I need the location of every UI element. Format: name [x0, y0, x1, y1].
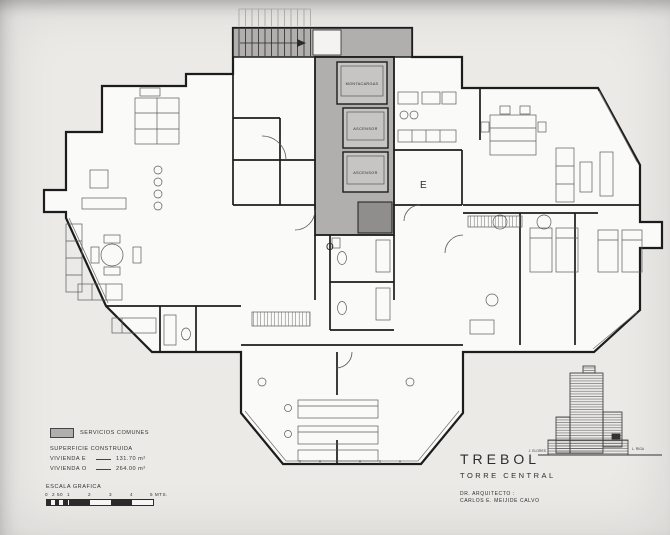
vivienda-e-value: 131.70 m²	[116, 455, 146, 464]
legend: SERVICIOS COMUNES SUPERFICIE CONSTRUIDA …	[50, 428, 149, 474]
leader-line	[96, 468, 111, 470]
scale-bar: ESCALA GRAFICA 0 2 50 1 2 3 4 5 MTS.	[46, 484, 176, 506]
scale-tick: 2	[88, 492, 91, 497]
scale-tick: 0	[45, 492, 48, 497]
scale-tick: 5 MTS.	[150, 492, 168, 497]
architect-name: CARLOS E. MEIJIDE CALVO	[460, 498, 556, 505]
scale-tick: 1	[67, 492, 70, 497]
vivienda-e-label: VIVIENDA E	[50, 455, 96, 464]
site-label-right: L. RIGA	[632, 447, 645, 451]
vivienda-e-row: VIVIENDA E 131.70 m²	[50, 455, 149, 464]
scale-tick: 2	[52, 492, 55, 497]
vivienda-o-label: VIVIENDA O	[50, 465, 96, 474]
scale-tick: 3	[109, 492, 112, 497]
corridor-stairs	[233, 9, 412, 57]
project-title: TREBOL	[460, 451, 556, 467]
railing-ticks	[239, 9, 311, 26]
label-ascensor-lower: ASCENSOR	[353, 171, 378, 175]
legend-servicios-row: SERVICIOS COMUNES	[50, 428, 149, 438]
superficie-construida-label: SUPERFICIE CONSTRUIDA	[50, 445, 149, 454]
vivienda-o-row: VIVIENDA O 264.00 m²	[50, 465, 149, 474]
scale-bar-graphic	[46, 499, 154, 506]
unit-marker-east: E	[420, 180, 427, 191]
label-ascensor-upper: ASCENSOR	[353, 127, 378, 131]
blueprint-page: MONTACARGAS ASCENSOR ASCENSOR E O J. ELO…	[0, 0, 670, 535]
title-block: TREBOL TORRE CENTRAL DR. ARQUITECTO : CA…	[460, 451, 556, 505]
unit-marker-west: O	[326, 242, 334, 253]
servicios-comunes-label: SERVICIOS COMUNES	[80, 429, 149, 438]
scale-tick: 50	[57, 492, 63, 497]
scale-title: ESCALA GRAFICA	[46, 484, 176, 490]
scale-tick-labels: 0 2 50 1 2 3 4 5 MTS.	[46, 492, 176, 498]
leader-line	[96, 458, 111, 460]
label-montacargas: MONTACARGAS	[346, 82, 379, 86]
project-subtitle: TORRE CENTRAL	[460, 471, 556, 480]
servicios-comunes-swatch	[50, 428, 74, 438]
architect-label: DR. ARQUITECTO :	[460, 491, 556, 498]
vivienda-o-value: 264.00 m²	[116, 465, 146, 474]
scale-tick: 4	[130, 492, 133, 497]
elevation-drawing: J. ELORES L. RIGA	[529, 366, 662, 455]
